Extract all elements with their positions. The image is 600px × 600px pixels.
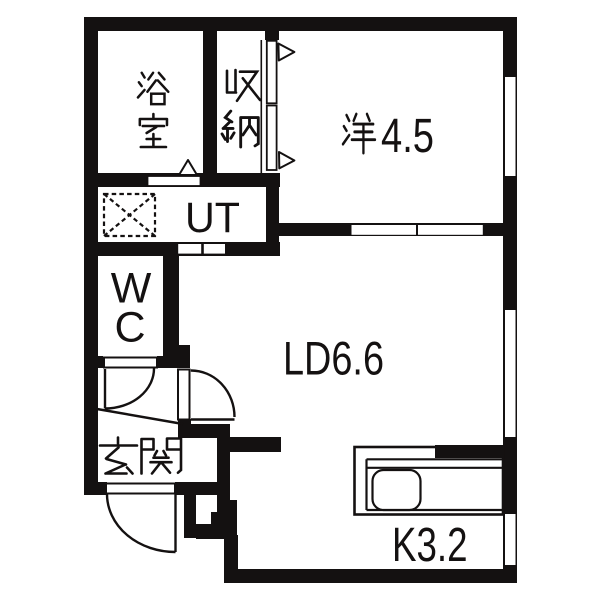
svg-text:K3.2: K3.2 (392, 519, 468, 572)
svg-text:C: C (114, 303, 145, 351)
svg-text:LD6.6: LD6.6 (283, 332, 384, 385)
svg-text:4.5: 4.5 (381, 110, 434, 163)
svg-text:UT: UT (185, 194, 240, 242)
